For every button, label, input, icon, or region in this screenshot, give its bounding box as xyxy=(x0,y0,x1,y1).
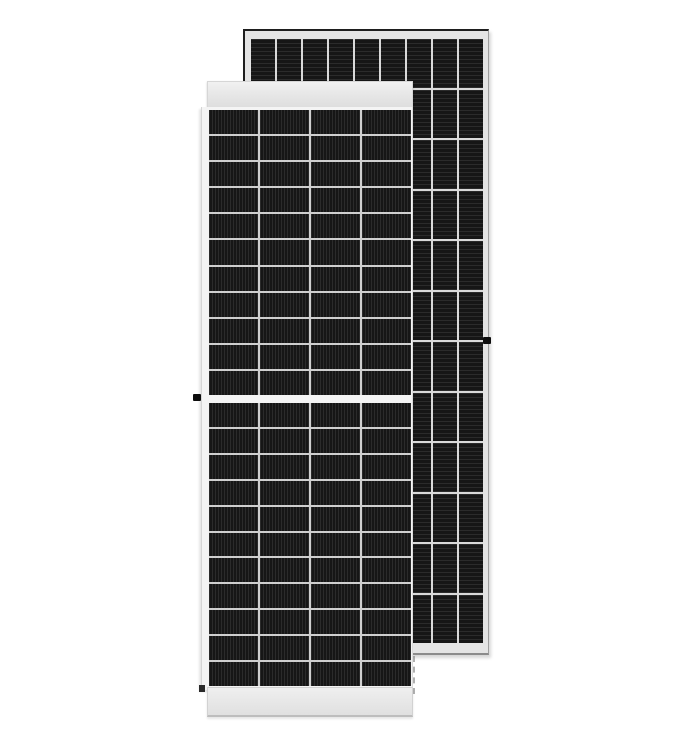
solar-cell xyxy=(311,429,360,453)
solar-cell xyxy=(459,292,483,341)
solar-cell xyxy=(209,533,258,557)
solar-cell xyxy=(260,267,309,291)
solar-cell xyxy=(260,319,309,343)
solar-cell xyxy=(459,595,483,644)
solar-cell xyxy=(209,188,258,212)
front-panel-cells xyxy=(209,110,411,686)
solar-cell xyxy=(362,371,411,395)
solar-cell xyxy=(362,293,411,317)
solar-cell xyxy=(311,481,360,505)
solar-cell xyxy=(459,342,483,391)
solar-cell xyxy=(433,544,457,593)
solar-cell xyxy=(209,136,258,160)
solar-cell xyxy=(260,636,309,660)
solar-cell xyxy=(362,610,411,634)
solar-cell xyxy=(459,393,483,442)
solar-cell xyxy=(433,140,457,189)
solar-cell xyxy=(433,595,457,644)
solar-cell xyxy=(209,240,258,264)
solar-cell xyxy=(311,584,360,608)
solar-cell xyxy=(209,507,258,531)
solar-cell xyxy=(260,584,309,608)
grounding-lug-back xyxy=(483,337,491,344)
solar-cell xyxy=(209,214,258,238)
frame-corner-notch xyxy=(199,685,205,692)
solar-cell xyxy=(433,241,457,290)
grounding-lug-front xyxy=(193,394,201,401)
solar-cell xyxy=(311,455,360,479)
solar-cell xyxy=(209,162,258,186)
solar-cell xyxy=(311,533,360,557)
solar-cell xyxy=(362,533,411,557)
solar-cell xyxy=(362,214,411,238)
solar-cell xyxy=(433,90,457,139)
solar-cell xyxy=(260,610,309,634)
solar-cell xyxy=(362,110,411,134)
solar-cell xyxy=(311,293,360,317)
solar-cell xyxy=(362,319,411,343)
solar-cell xyxy=(311,240,360,264)
solar-cell xyxy=(433,443,457,492)
solar-cell xyxy=(260,214,309,238)
solar-cell xyxy=(260,293,309,317)
solar-cell xyxy=(209,319,258,343)
solar-cell xyxy=(260,662,309,686)
solar-cell xyxy=(459,90,483,139)
solar-cell xyxy=(209,662,258,686)
solar-cell xyxy=(260,429,309,453)
solar-cell xyxy=(362,507,411,531)
solar-cell xyxy=(433,393,457,442)
solar-cell xyxy=(311,662,360,686)
solar-cell xyxy=(209,371,258,395)
solar-cell xyxy=(311,507,360,531)
solar-cell xyxy=(209,429,258,453)
solar-cell xyxy=(311,610,360,634)
solar-cell xyxy=(311,403,360,427)
solar-cell xyxy=(209,636,258,660)
solar-cell xyxy=(260,558,309,582)
solar-cell xyxy=(260,481,309,505)
front-panel-lower-half-grid xyxy=(209,403,411,686)
solar-cell xyxy=(209,267,258,291)
solar-cell xyxy=(459,443,483,492)
solar-cell xyxy=(209,345,258,369)
solar-cell xyxy=(311,162,360,186)
solar-cell xyxy=(433,39,457,88)
solar-cell xyxy=(362,162,411,186)
solar-cell xyxy=(362,481,411,505)
solar-cell xyxy=(260,403,309,427)
solar-cell xyxy=(459,241,483,290)
solar-cell xyxy=(209,110,258,134)
front-panel-bottom-rail xyxy=(207,687,413,717)
solar-cell xyxy=(260,136,309,160)
solar-cell xyxy=(362,136,411,160)
solar-cell xyxy=(209,558,258,582)
solar-cell xyxy=(311,214,360,238)
solar-cell xyxy=(260,455,309,479)
solar-cell xyxy=(209,293,258,317)
solar-cell xyxy=(260,507,309,531)
solar-cell xyxy=(362,429,411,453)
front-panel-top-rail xyxy=(207,81,413,108)
solar-cell xyxy=(459,39,483,88)
solar-cell xyxy=(311,636,360,660)
solar-cell xyxy=(260,371,309,395)
solar-cell xyxy=(459,494,483,543)
solar-cell xyxy=(209,455,258,479)
solar-cell xyxy=(362,403,411,427)
solar-cell xyxy=(459,191,483,240)
solar-cell xyxy=(311,371,360,395)
solar-cell xyxy=(260,240,309,264)
solar-cell xyxy=(362,662,411,686)
solar-cell xyxy=(311,267,360,291)
solar-cell xyxy=(209,403,258,427)
solar-cell xyxy=(362,558,411,582)
solar-cell xyxy=(362,455,411,479)
solar-cell xyxy=(260,533,309,557)
solar-cell xyxy=(362,584,411,608)
solar-cell xyxy=(362,636,411,660)
solar-cell xyxy=(433,494,457,543)
solar-cell xyxy=(311,188,360,212)
solar-cell xyxy=(260,188,309,212)
solar-cell xyxy=(362,240,411,264)
solar-cell xyxy=(433,342,457,391)
solar-cell xyxy=(362,267,411,291)
front-solar-panel xyxy=(200,81,414,718)
solar-cell xyxy=(311,110,360,134)
solar-cell xyxy=(433,191,457,240)
solar-cell xyxy=(362,345,411,369)
solar-cell xyxy=(459,140,483,189)
solar-cell xyxy=(260,110,309,134)
solar-cell xyxy=(260,345,309,369)
solar-cell xyxy=(362,188,411,212)
solar-cell xyxy=(433,292,457,341)
front-panel-upper-half-grid xyxy=(209,110,411,395)
solar-cell xyxy=(311,558,360,582)
solar-cell xyxy=(311,136,360,160)
solar-cell xyxy=(311,345,360,369)
solar-cell xyxy=(209,481,258,505)
solar-cell xyxy=(209,584,258,608)
solar-cell xyxy=(459,544,483,593)
product-photo-stage xyxy=(0,0,684,748)
solar-cell xyxy=(209,610,258,634)
solar-cell xyxy=(311,319,360,343)
solar-cell xyxy=(260,162,309,186)
